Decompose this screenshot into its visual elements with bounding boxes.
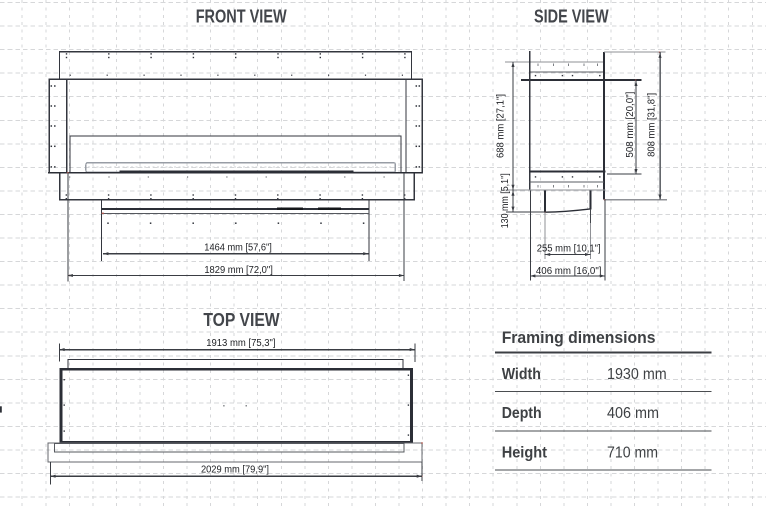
svg-text:Depth: Depth	[502, 405, 542, 422]
svg-text:406 mm: 406 mm	[607, 405, 659, 422]
svg-text:1913 mm [75,3"]: 1913 mm [75,3"]	[206, 338, 276, 349]
svg-text:406 mm [16,0"]: 406 mm [16,0"]	[536, 266, 602, 277]
svg-text:Framing dimensions: Framing dimensions	[502, 328, 656, 347]
svg-text:1829 mm [72,0"]: 1829 mm [72,0"]	[204, 265, 273, 276]
svg-text:1930 mm: 1930 mm	[607, 366, 667, 383]
svg-text:688 mm [27,1"]: 688 mm [27,1"]	[495, 94, 506, 158]
svg-text:508 mm [20,0"]: 508 mm [20,0"]	[625, 91, 636, 157]
svg-text:TOP VIEW: TOP VIEW	[203, 310, 279, 330]
svg-text:FRONT VIEW: FRONT VIEW	[196, 7, 287, 27]
svg-text:2029 mm [79,9"]: 2029 mm [79,9"]	[201, 464, 269, 475]
svg-text:Width: Width	[502, 366, 541, 383]
svg-text:Height: Height	[502, 444, 548, 461]
svg-text:255 mm [10,1"]: 255 mm [10,1"]	[537, 244, 601, 255]
svg-text:808 mm [31,8"]: 808 mm [31,8"]	[646, 93, 657, 157]
svg-text:1464 mm [57,6"]: 1464 mm [57,6"]	[204, 243, 272, 254]
svg-text:710 mm: 710 mm	[607, 444, 658, 461]
svg-text:SIDE VIEW: SIDE VIEW	[534, 7, 609, 27]
svg-text:130 mm [5,1"]: 130 mm [5,1"]	[500, 173, 511, 228]
